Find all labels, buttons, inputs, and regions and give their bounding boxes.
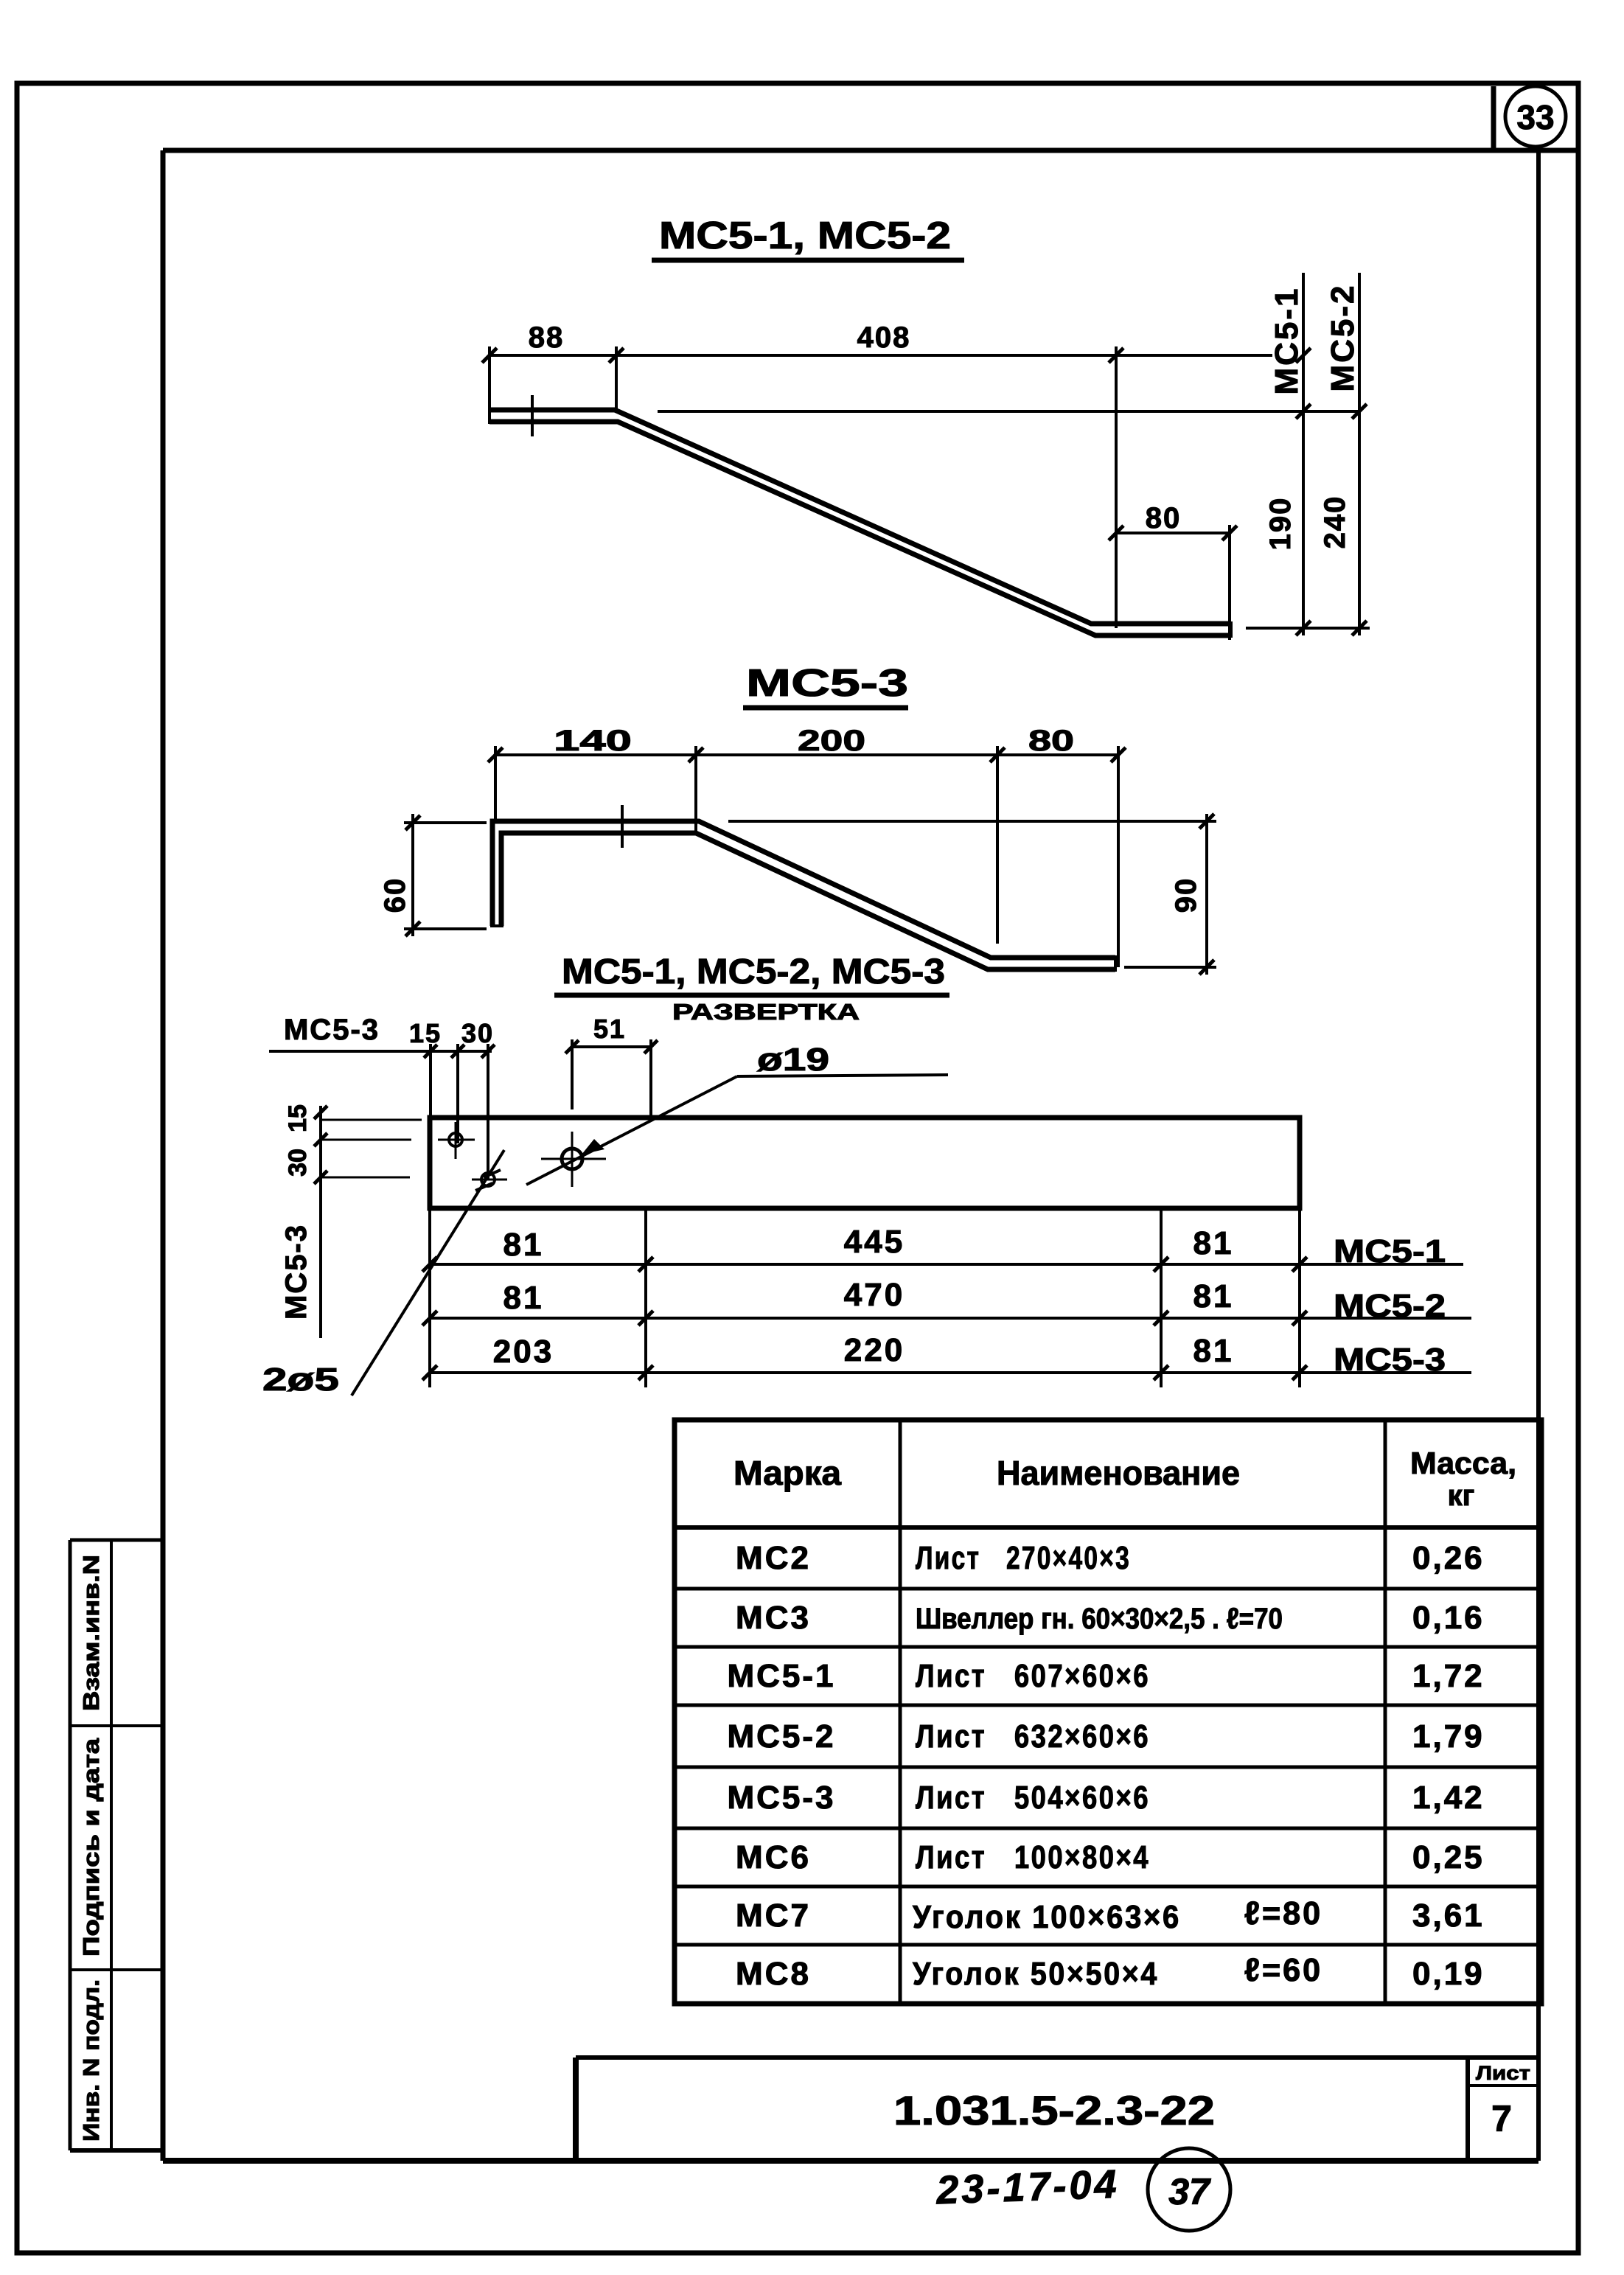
svg-text:220: 220: [844, 1332, 905, 1368]
svg-text:МС5-3: МС5-3: [727, 1780, 835, 1816]
svg-text:30: 30: [461, 1018, 494, 1048]
svg-text:МС8: МС8: [736, 1956, 811, 1992]
svg-text:кг: кг: [1448, 1480, 1475, 1512]
svg-text:Наименование: Наименование: [997, 1454, 1240, 1492]
svg-text:МС5-3: МС5-3: [280, 1224, 313, 1320]
svg-text:140: 140: [554, 725, 632, 757]
svg-text:408: 408: [857, 321, 911, 354]
svg-text:90: 90: [1170, 877, 1202, 913]
svg-text:МС5-3: МС5-3: [746, 662, 908, 705]
svg-text:Марка: Марка: [733, 1454, 841, 1492]
svg-text:ℓ=80: ℓ=80: [1244, 1895, 1322, 1931]
svg-text:1.031.5-2.3-22: 1.031.5-2.3-22: [893, 2087, 1215, 2133]
svg-text:МС2: МС2: [736, 1540, 811, 1576]
svg-text:2ø5: 2ø5: [262, 1362, 339, 1398]
svg-text:470: 470: [844, 1277, 905, 1313]
svg-text:МС5-2: МС5-2: [1325, 283, 1361, 391]
svg-text:15: 15: [409, 1018, 442, 1048]
svg-text:МС5-2: МС5-2: [1334, 1288, 1446, 1324]
svg-text:Лист: Лист: [1476, 2062, 1530, 2084]
svg-text:1,79: 1,79: [1412, 1718, 1485, 1755]
svg-text:81: 81: [503, 1280, 544, 1316]
svg-text:60: 60: [379, 877, 411, 913]
svg-text:МС6: МС6: [736, 1839, 811, 1875]
svg-text:Лист 607×60×6: Лист 607×60×6: [916, 1658, 1150, 1694]
svg-text:51: 51: [593, 1014, 626, 1044]
svg-text:ℓ=60: ℓ=60: [1244, 1952, 1322, 1988]
svg-text:Инв. N подл.: Инв. N подл.: [78, 1979, 104, 2142]
svg-text:30: 30: [284, 1149, 312, 1177]
svg-text:80: 80: [1028, 725, 1074, 757]
svg-text:Уголок 50×50×4: Уголок 50×50×4: [913, 1956, 1159, 1992]
svg-text:88: 88: [529, 321, 565, 354]
svg-text:РАЗВЕРТКА: РАЗВЕРТКА: [672, 999, 860, 1025]
svg-text:МС5-1: МС5-1: [727, 1658, 835, 1694]
svg-text:0,25: 0,25: [1412, 1839, 1485, 1875]
svg-text:Взам.инв.N: Взам.инв.N: [78, 1555, 104, 1711]
svg-text:240: 240: [1319, 495, 1351, 549]
svg-text:81: 81: [1193, 1278, 1234, 1314]
svg-text:0,19: 0,19: [1412, 1956, 1485, 1992]
svg-text:МС5-3: МС5-3: [1334, 1342, 1446, 1378]
svg-text:81: 81: [1193, 1225, 1234, 1261]
svg-text:200: 200: [798, 725, 865, 757]
svg-text:Швеллер гн. 60×30×2,5 . ℓ=70: Швеллер гн. 60×30×2,5 . ℓ=70: [916, 1603, 1283, 1635]
svg-text:7: 7: [1491, 2098, 1512, 2139]
svg-text:3,61: 3,61: [1412, 1898, 1485, 1934]
svg-text:81: 81: [1193, 1333, 1234, 1369]
svg-text:МС5-1, МС5-2, МС5-3: МС5-1, МС5-2, МС5-3: [562, 952, 945, 992]
svg-text:Лист 270×40×3: Лист 270×40×3: [916, 1540, 1131, 1576]
svg-text:ø19: ø19: [757, 1042, 829, 1078]
svg-text:Уголок 100×63×6: Уголок 100×63×6: [913, 1899, 1181, 1935]
svg-text:445: 445: [844, 1224, 905, 1260]
svg-text:Масса,: Масса,: [1410, 1446, 1516, 1480]
svg-text:МС5-2: МС5-2: [727, 1718, 835, 1755]
svg-text:33: 33: [1516, 98, 1554, 136]
svg-text:37: 37: [1168, 2171, 1211, 2212]
svg-text:МС7: МС7: [736, 1898, 811, 1934]
svg-text:Подпись и дата: Подпись и дата: [78, 1738, 104, 1957]
svg-text:190: 190: [1264, 497, 1297, 551]
svg-text:МС5-1: МС5-1: [1269, 286, 1305, 394]
svg-text:80: 80: [1146, 502, 1182, 534]
svg-text:МС5-3: МС5-3: [284, 1014, 380, 1046]
svg-text:Лист 632×60×6: Лист 632×60×6: [916, 1718, 1150, 1755]
svg-text:203: 203: [493, 1334, 554, 1370]
svg-text:0,26: 0,26: [1412, 1540, 1485, 1576]
svg-text:23-17-04: 23-17-04: [935, 2162, 1120, 2213]
svg-text:15: 15: [284, 1104, 312, 1132]
svg-text:81: 81: [503, 1227, 544, 1263]
svg-text:Лист 504×60×6: Лист 504×60×6: [916, 1780, 1150, 1816]
svg-text:МС5-1, МС5-2: МС5-1, МС5-2: [659, 215, 951, 257]
svg-text:1,72: 1,72: [1412, 1658, 1485, 1694]
svg-text:Лист 100×80×4: Лист 100×80×4: [916, 1839, 1150, 1875]
svg-text:МС5-1: МС5-1: [1334, 1233, 1446, 1269]
svg-text:0,16: 0,16: [1412, 1600, 1485, 1636]
svg-text:1,42: 1,42: [1412, 1780, 1485, 1816]
svg-text:МС3: МС3: [736, 1600, 811, 1636]
